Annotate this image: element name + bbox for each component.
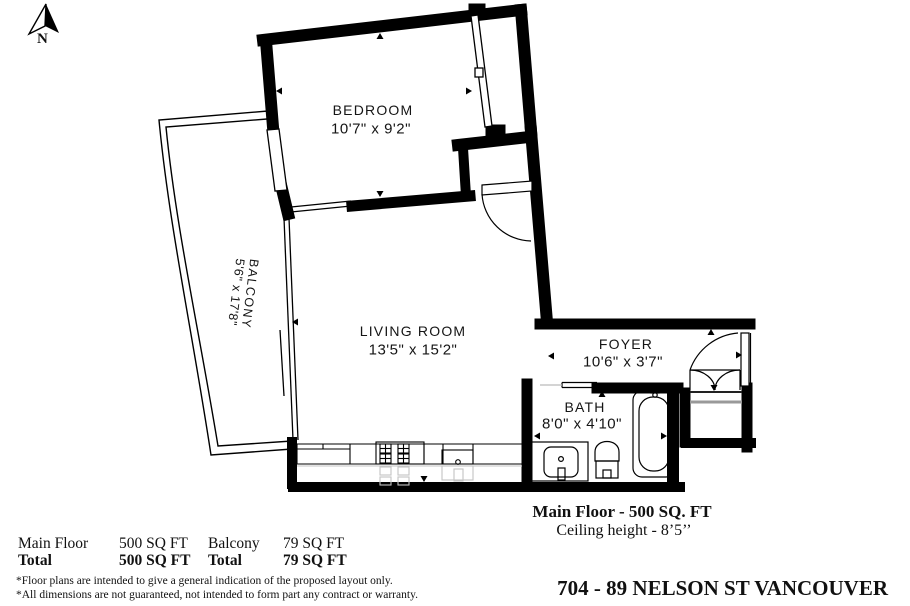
summary-mainfloor-label: Main Floor <box>18 535 88 553</box>
disclaimer-line-2: *All dimensions are not guaranteed, not … <box>16 589 418 601</box>
room-label-living: LIVING ROOM <box>360 323 467 339</box>
summary-balcony-value: 79 SQ FT <box>283 535 344 553</box>
floorplan-page: N BEDROOM 10'7" x 9'2" LIVING ROOM 13'5"… <box>0 0 910 606</box>
walls <box>263 4 751 487</box>
toilet-icon <box>595 442 619 479</box>
disclaimer-line-1: *Floor plans are intended to give a gene… <box>16 575 393 587</box>
room-label-bedroom: BEDROOM <box>333 102 414 118</box>
summary-total-value: 500 SQ FT <box>119 552 190 570</box>
floorplan-drawing <box>0 0 910 606</box>
north-compass-icon <box>29 4 59 34</box>
stove-icon <box>376 442 424 464</box>
room-dims-living: 13'5" x 15'2" <box>369 342 458 359</box>
room-label-bath: BATH <box>564 399 605 415</box>
room-dims-bath: 8'0" x 4'10" <box>542 416 622 433</box>
room-label-foyer: FOYER <box>599 336 653 352</box>
property-address: 704 - 89 NELSON ST VANCOUVER <box>490 576 888 601</box>
room-dims-bedroom: 10'7" x 9'2" <box>331 121 411 138</box>
kitchen-fixtures <box>297 442 522 485</box>
kitchen-sink-icon <box>442 450 473 464</box>
north-label: N <box>37 31 48 48</box>
summary-balcony-total-value: 79 SQ FT <box>283 552 347 570</box>
closet-shelf <box>690 392 742 402</box>
bath-sink-icon <box>531 442 588 481</box>
ceiling-height-text: Ceiling height - 8’5’’ <box>556 522 691 540</box>
summary-total-label: Total <box>18 552 52 570</box>
windows <box>267 15 492 440</box>
room-dims-foyer: 10'6" x 3'7" <box>583 354 663 371</box>
summary-mainfloor-value: 500 SQ FT <box>119 535 188 553</box>
summary-balcony-label: Balcony <box>208 535 260 553</box>
mainfloor-area-text: Main Floor - 500 SQ. FT <box>532 502 711 522</box>
summary-balcony-total-label: Total <box>208 552 242 570</box>
